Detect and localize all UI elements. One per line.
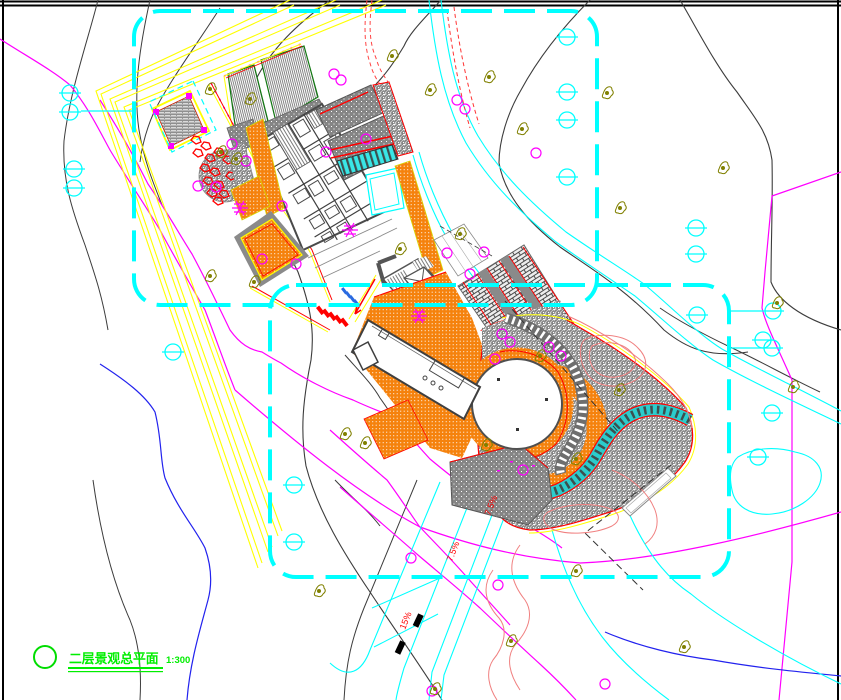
svg-text:二层景观总平面: 二层景观总平面	[69, 651, 159, 666]
svg-text:1:300: 1:300	[166, 655, 190, 666]
